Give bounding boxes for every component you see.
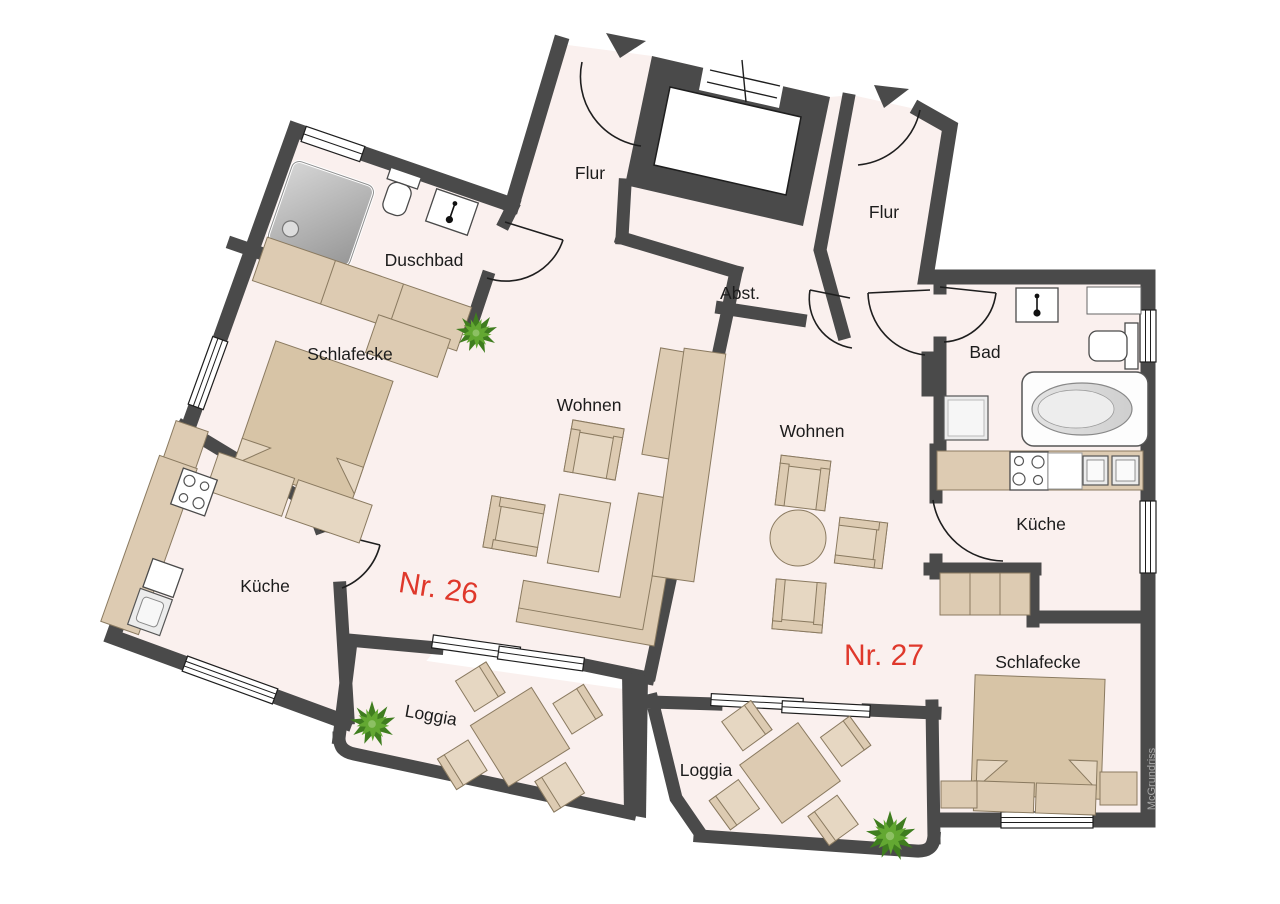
room-label-kueche-27: Küche <box>1016 514 1066 534</box>
wedge-wall <box>622 672 648 818</box>
armchair <box>775 455 831 511</box>
window-bad-right <box>1140 310 1156 362</box>
room-label-kueche-26: Küche <box>240 576 290 596</box>
bed-27 <box>970 675 1105 815</box>
round-table <box>770 510 826 566</box>
armchair <box>772 579 826 633</box>
room-label-abst: Abst. <box>720 283 760 303</box>
armchair <box>483 496 545 557</box>
room-label-bad: Bad <box>969 342 1000 362</box>
floorplan-svg: Flur Duschbad Schlafecke Wohnen Küche Nr… <box>0 0 1280 904</box>
room-label-wohnen-27: Wohnen <box>780 421 845 441</box>
armchair <box>564 420 624 480</box>
room-label-flur-26: Flur <box>575 163 605 183</box>
window-kueche27-right <box>1140 501 1156 573</box>
nightstand <box>1100 772 1137 805</box>
room-label-loggia-27: Loggia <box>680 760 733 780</box>
washing-machine-icon <box>944 396 988 440</box>
room-label-flur-27: Flur <box>869 202 899 222</box>
kitchen-counter-27 <box>937 451 1143 490</box>
bench-seat <box>940 573 1030 615</box>
floorplan-canvas: Flur Duschbad Schlafecke Wohnen Küche Nr… <box>0 0 1280 904</box>
room-label-schlafecke-27: Schlafecke <box>995 652 1081 672</box>
apartment-number-27: Nr. 27 <box>844 639 924 672</box>
room-label-schlafecke-26: Schlafecke <box>307 344 393 364</box>
armchair <box>834 517 887 569</box>
room-label-duschbad: Duschbad <box>385 250 464 270</box>
sink-icon <box>1016 288 1058 322</box>
bathtub-icon <box>1022 372 1148 446</box>
watermark-text: McGrundriss <box>1146 747 1158 810</box>
wall-niche <box>1087 287 1141 314</box>
room-label-wohnen-26: Wohnen <box>557 395 622 415</box>
nightstand <box>941 781 977 808</box>
